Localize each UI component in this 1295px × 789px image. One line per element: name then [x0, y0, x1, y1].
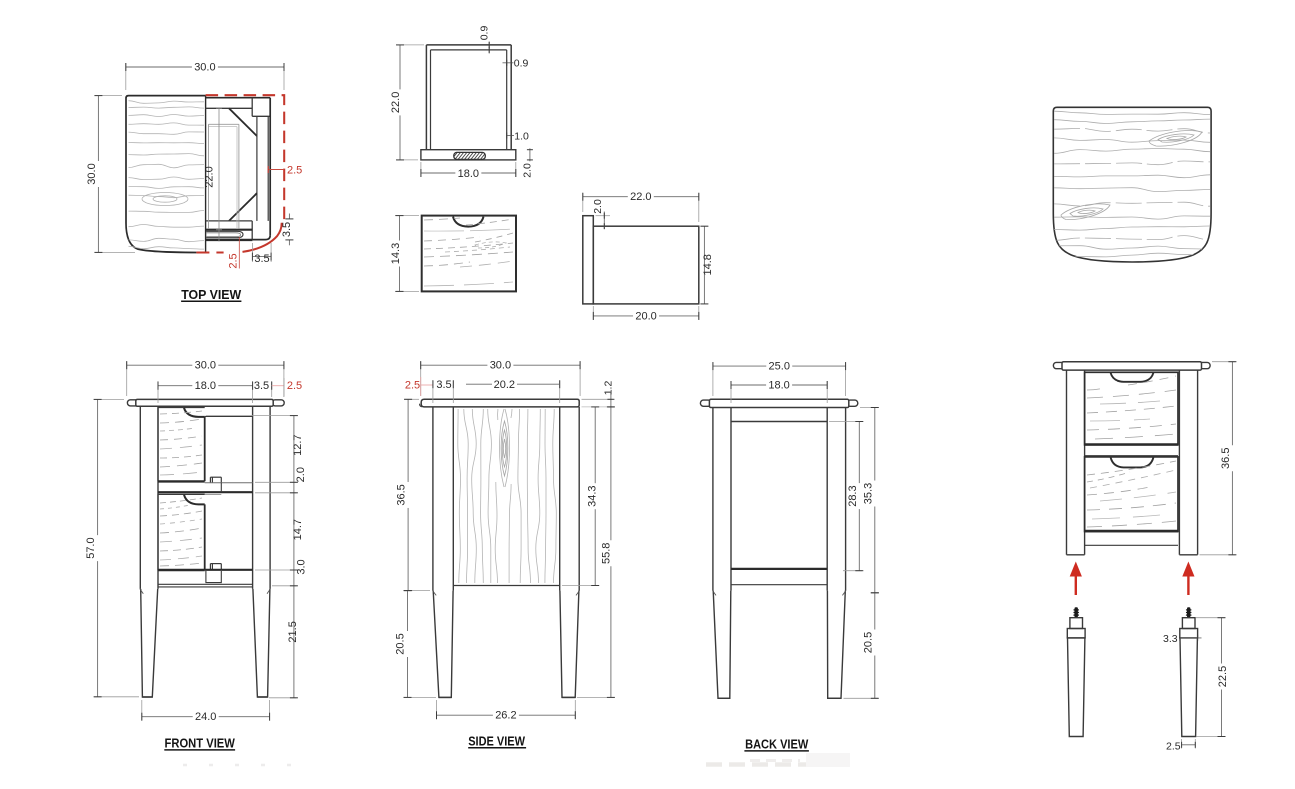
- svg-text:3.5: 3.5: [436, 379, 451, 391]
- svg-text:22.0: 22.0: [630, 191, 651, 203]
- svg-text:20.5: 20.5: [862, 632, 874, 653]
- svg-text:1.0: 1.0: [514, 130, 529, 142]
- svg-text:26.2: 26.2: [495, 710, 516, 722]
- svg-text:SIDE VIEW: SIDE VIEW: [468, 734, 525, 748]
- svg-text:14.3: 14.3: [390, 243, 402, 264]
- svg-text:57.0: 57.0: [85, 537, 97, 558]
- svg-text:22.0: 22.0: [390, 92, 402, 113]
- svg-text:30.0: 30.0: [86, 163, 98, 184]
- svg-text:3.5: 3.5: [281, 222, 293, 237]
- svg-text:2.0: 2.0: [295, 467, 307, 482]
- svg-text:24.0: 24.0: [195, 711, 216, 723]
- svg-text:FRONT VIEW: FRONT VIEW: [165, 737, 235, 751]
- svg-text:14.8: 14.8: [702, 254, 714, 275]
- svg-text:2.5: 2.5: [228, 253, 240, 268]
- svg-text:3.3: 3.3: [1163, 633, 1178, 645]
- svg-text:0.9: 0.9: [479, 26, 491, 41]
- svg-text:36.5: 36.5: [1220, 448, 1232, 469]
- svg-text:2.5: 2.5: [287, 380, 302, 392]
- svg-text:2.0: 2.0: [592, 199, 604, 214]
- svg-text:BACK VIEW: BACK VIEW: [745, 738, 808, 752]
- svg-text:30.0: 30.0: [195, 360, 216, 372]
- svg-text:0.9: 0.9: [514, 58, 529, 70]
- svg-text:2.0: 2.0: [521, 163, 533, 178]
- svg-text:2.5: 2.5: [1166, 740, 1181, 752]
- svg-text:30.0: 30.0: [490, 360, 511, 372]
- svg-text:20.5: 20.5: [395, 633, 407, 654]
- svg-text:55.8: 55.8: [600, 543, 612, 564]
- svg-text:34.3: 34.3: [586, 485, 598, 506]
- svg-text:18.0: 18.0: [768, 380, 789, 392]
- svg-text:3.0: 3.0: [296, 559, 308, 574]
- svg-text:36.5: 36.5: [395, 484, 407, 505]
- svg-text:35.3: 35.3: [862, 483, 874, 504]
- svg-text:20.0: 20.0: [635, 310, 656, 322]
- svg-text:22.5: 22.5: [1217, 666, 1229, 687]
- svg-text:25.0: 25.0: [769, 361, 790, 373]
- svg-text:18.0: 18.0: [195, 380, 216, 392]
- svg-text:21.5: 21.5: [287, 621, 299, 642]
- svg-text:3.5: 3.5: [254, 253, 269, 265]
- svg-text:2.5: 2.5: [405, 380, 420, 392]
- svg-text:12.7: 12.7: [292, 434, 304, 455]
- svg-text:18.0: 18.0: [458, 168, 479, 180]
- svg-text:20.2: 20.2: [494, 379, 515, 391]
- svg-text:14.7: 14.7: [292, 519, 304, 540]
- svg-text:TOP VIEW: TOP VIEW: [181, 288, 241, 302]
- svg-text:22.0: 22.0: [204, 166, 216, 187]
- svg-text:3.5: 3.5: [254, 380, 269, 392]
- svg-text:28.3: 28.3: [847, 485, 859, 506]
- svg-text:2.5: 2.5: [287, 164, 302, 176]
- svg-text:1.2: 1.2: [602, 381, 614, 396]
- svg-text:30.0: 30.0: [194, 62, 215, 74]
